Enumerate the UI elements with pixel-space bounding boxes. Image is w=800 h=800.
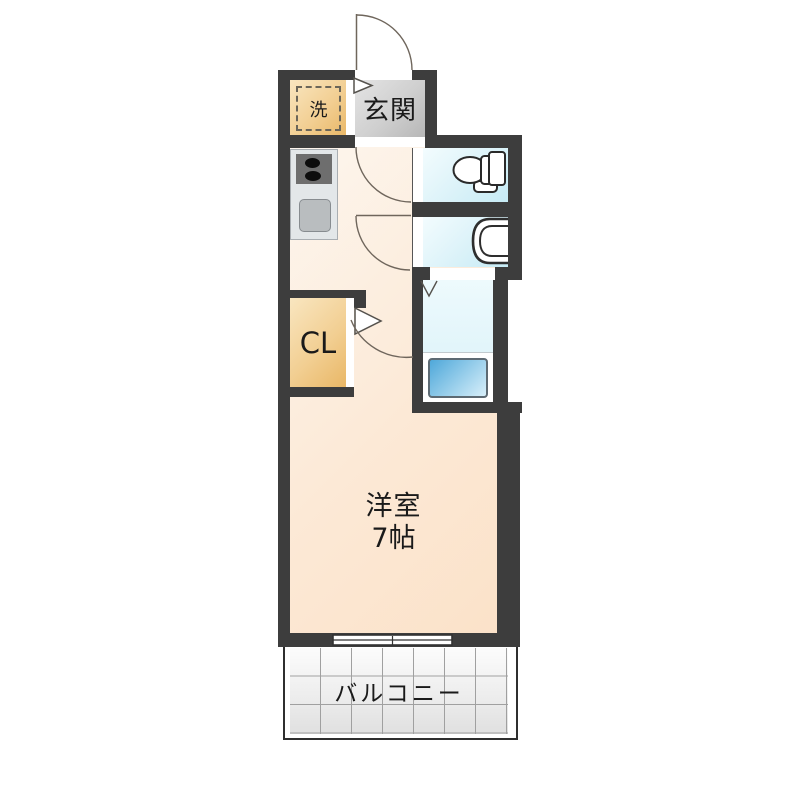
main-room-name: 洋室 bbox=[290, 487, 497, 519]
wall bbox=[278, 70, 290, 647]
washing-machine-space: 洗 bbox=[296, 86, 341, 131]
sink-icon bbox=[299, 199, 331, 232]
main-room-size: 7帖 bbox=[290, 519, 497, 551]
bathtub-icon bbox=[428, 358, 488, 398]
wall bbox=[495, 267, 522, 280]
closet-label: CL bbox=[290, 298, 346, 387]
bathroom-door-opening bbox=[430, 268, 495, 280]
wall bbox=[412, 280, 423, 413]
wall bbox=[278, 387, 354, 397]
toilet-door bbox=[412, 148, 423, 202]
wall bbox=[278, 135, 355, 148]
entrance-door-swing-arc bbox=[357, 14, 413, 70]
wall bbox=[412, 202, 508, 217]
entrance-label: 玄関 bbox=[355, 80, 425, 137]
wall bbox=[278, 290, 354, 298]
main-room-label: 洋室 7帖 bbox=[290, 487, 497, 557]
washbasin-door bbox=[412, 217, 423, 267]
wall bbox=[412, 267, 430, 280]
wall bbox=[508, 135, 522, 280]
stove-icon bbox=[296, 154, 332, 184]
toilet-room bbox=[423, 148, 508, 202]
closet-door bbox=[346, 298, 354, 387]
wall bbox=[412, 402, 522, 413]
washbasin-room bbox=[423, 217, 508, 267]
balcony-label: バルコニー bbox=[290, 648, 508, 734]
laundry-label: 洗 bbox=[310, 96, 328, 122]
kitchen-counter bbox=[290, 149, 338, 240]
balcony: バルコニー bbox=[283, 645, 518, 740]
wall bbox=[497, 413, 520, 647]
wall bbox=[278, 633, 520, 647]
wall bbox=[493, 280, 508, 413]
floor-plan: バルコニー 洗 bbox=[0, 0, 800, 800]
